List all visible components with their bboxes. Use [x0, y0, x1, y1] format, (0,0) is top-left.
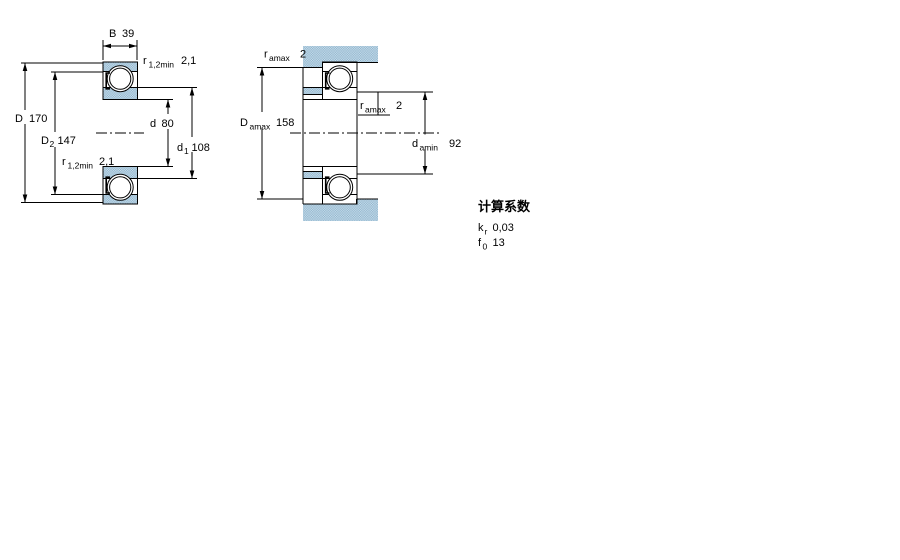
- calculation-factors: 计算系数 k r 0,03 f 0 13: [478, 199, 531, 252]
- r-value: 2: [300, 49, 306, 61]
- r-value: 2,1: [99, 156, 114, 168]
- dim-d1-subscript: 1: [184, 146, 189, 156]
- r-symbol: r: [360, 100, 364, 112]
- arrow-down: [23, 195, 28, 203]
- r-subscript: 1,2min: [149, 60, 175, 70]
- r-value: 2,1: [181, 55, 196, 67]
- r-subscript: 1,2min: [68, 161, 94, 171]
- label-ra-top: r amax 2: [264, 49, 306, 64]
- bearing-section-bottom: [103, 167, 138, 205]
- dim-D2-value: 147: [58, 135, 76, 147]
- dim-Da-subscript: amax: [250, 122, 272, 132]
- arrow-left: [103, 44, 111, 49]
- label-r12-top: r 1,2min 2,1: [143, 55, 196, 70]
- arrow-down: [260, 191, 265, 199]
- bearing-drawing: B 39 D 170 D 2 147 d: [0, 0, 900, 560]
- dim-D-value: 170: [29, 113, 47, 125]
- dim-Da-symbol: D: [240, 117, 248, 129]
- dim-B-symbol: B: [109, 28, 116, 40]
- r-value: 2: [396, 100, 402, 112]
- dim-da-value: 92: [449, 138, 461, 150]
- dim-da-subscript: amin: [420, 143, 439, 153]
- r-symbol: r: [143, 55, 147, 67]
- arrow-up: [166, 100, 171, 108]
- dim-lines: [137, 88, 197, 179]
- factor-value: 0,03: [493, 222, 514, 234]
- arrow-right: [129, 44, 137, 49]
- arrow-up: [423, 92, 428, 100]
- bearing-section-top: [103, 62, 138, 100]
- arrow-up: [23, 63, 28, 71]
- label-ra-mid: r amax 2: [358, 92, 402, 115]
- dimension-D2: D 2 147: [39, 72, 103, 195]
- arrow-up: [190, 88, 195, 96]
- dim-da-symbol: d: [412, 138, 418, 150]
- r-symbol: r: [264, 49, 268, 61]
- r-symbol: r: [62, 156, 66, 168]
- dim-lines: [103, 40, 137, 60]
- factor-subscript: 0: [483, 242, 488, 252]
- r-subscript: amax: [365, 105, 387, 115]
- factor-kr: k r 0,03: [478, 222, 514, 237]
- right-view-mounting-section: D amax 158 d amin 92 r amax 2 r amax 2: [238, 46, 466, 221]
- dim-d1-value: 108: [192, 142, 210, 154]
- dim-D2-symbol: D: [41, 135, 49, 147]
- arrow-down: [53, 187, 58, 195]
- factor-value: 13: [493, 237, 505, 249]
- arrow-up: [260, 68, 265, 76]
- arrow-up: [53, 72, 58, 80]
- arrow-down: [423, 166, 428, 174]
- factor-f0: f 0 13: [478, 237, 505, 252]
- dimension-d1: d 1 108: [137, 88, 216, 179]
- bearing-section-top: [323, 62, 358, 100]
- left-view-bearing-section: B 39 D 170 D 2 147 d: [13, 28, 216, 204]
- dimension-B: B 39: [103, 28, 137, 60]
- shaft-shoulder-top: [303, 88, 323, 95]
- shaft-shoulder-bottom: [303, 172, 323, 179]
- dim-B-value: 39: [122, 28, 134, 40]
- factor-symbol: k: [478, 222, 484, 234]
- dim-D2-subscript: 2: [50, 139, 55, 149]
- dim-D-symbol: D: [15, 113, 23, 125]
- calculation-factors-heading: 计算系数: [478, 199, 531, 214]
- dim-Da-value: 158: [276, 117, 294, 129]
- dim-d-value: 80: [162, 118, 174, 130]
- r-subscript: amax: [269, 53, 291, 63]
- factor-subscript: r: [485, 227, 488, 237]
- dim-d1-symbol: d: [177, 142, 183, 154]
- dim-d-symbol: d: [150, 118, 156, 130]
- bearing-section-bottom: [323, 167, 358, 205]
- arrow-down: [166, 159, 171, 167]
- arrow-down: [190, 171, 195, 179]
- factor-symbol: f: [478, 237, 482, 249]
